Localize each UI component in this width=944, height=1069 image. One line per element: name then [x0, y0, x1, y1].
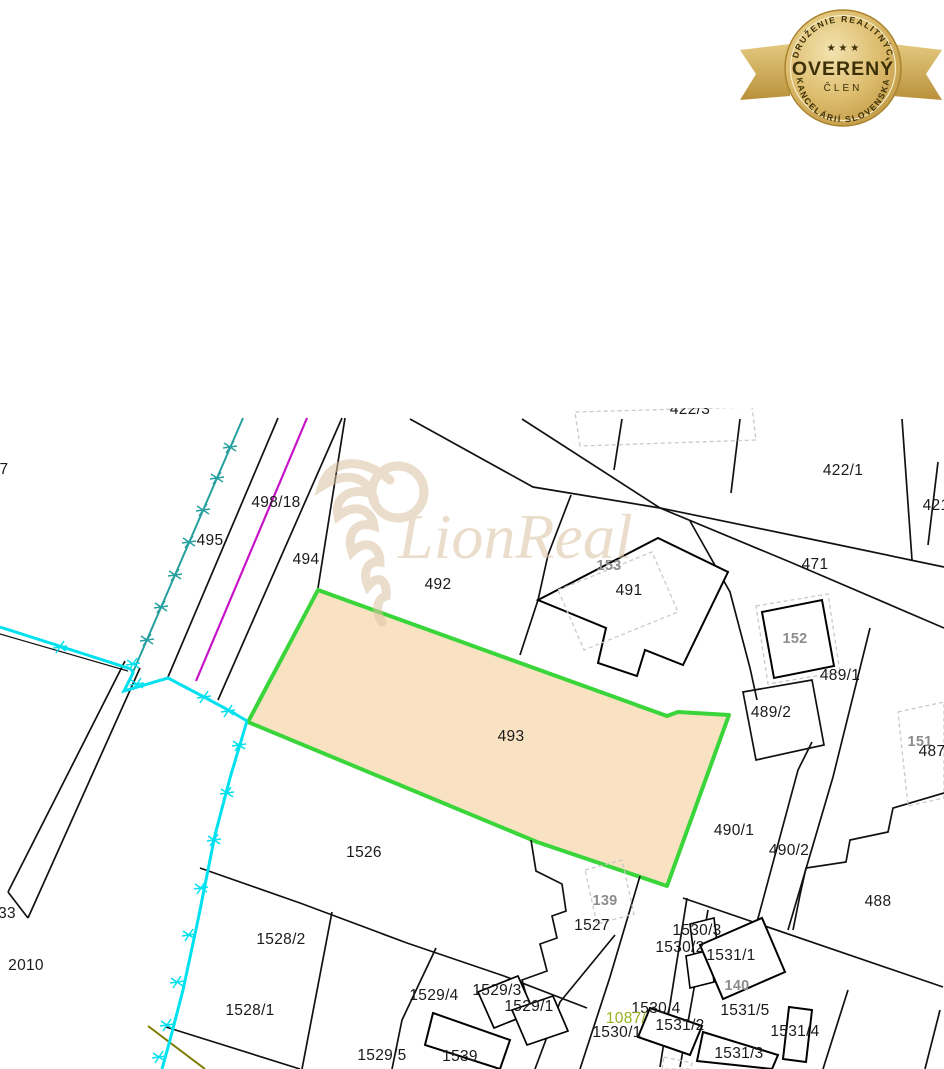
parcel-label-2010: 2010 [8, 957, 44, 975]
parcel-label-494: 494 [293, 551, 320, 569]
parcel-label-1528-1: 1528/1 [225, 1002, 274, 1020]
parcel-label-152: 152 [782, 631, 807, 647]
parcel-label-489-1: 489/1 [820, 667, 860, 685]
cadastral-map-screenshot: LionReal 7495498/18494492422/3422/142147… [0, 0, 944, 1069]
badge-sub-text: ČLEN [824, 81, 863, 94]
badge-stars: ★ ★ ★ [827, 43, 859, 54]
parcel-label-1529-1: 1529/1 [504, 998, 553, 1016]
parcel-label-139: 139 [592, 893, 617, 909]
parcel-label-487: 487 [919, 743, 944, 761]
parcel-label-1531-5: 1531/5 [720, 1002, 769, 1020]
parcel-label-1531-2: 1531/2 [655, 1017, 704, 1035]
parcel-label-492: 492 [425, 576, 452, 594]
parcel-label-1530-2: 1530/2 [655, 939, 704, 957]
parcel-label-153: 153 [596, 558, 621, 574]
parcel-label-1527: 1527 [574, 917, 610, 935]
parcel-label-495: 495 [197, 532, 224, 550]
parcel-label-488: 488 [865, 893, 892, 911]
cadastral-map[interactable]: LionReal 7495498/18494492422/3422/142147… [0, 408, 944, 1069]
parcel-label-7: 7 [0, 461, 8, 479]
parcel-label-421: 421 [923, 497, 944, 515]
parcel-label-422-3: 422/3 [670, 408, 710, 419]
parcel-label-140: 140 [724, 978, 749, 994]
parcel-label-471: 471 [802, 556, 829, 574]
parcel-label-1539: 1539 [442, 1048, 478, 1066]
parcel-label-491: 491 [616, 582, 643, 600]
parcel-label-498-18: 498/18 [251, 494, 300, 512]
parcel-label-1530-1: 1530/1 [592, 1024, 641, 1042]
parcel-label-490-1: 490/1 [714, 822, 754, 840]
parcel-label-493: 493 [498, 728, 525, 746]
parcel-label-1529-4: 1529/4 [409, 987, 458, 1005]
parcel-label-489-2: 489/2 [751, 704, 791, 722]
parcel-label-1531-1: 1531/1 [706, 947, 755, 965]
parcel-label-1531-3: 1531/3 [714, 1045, 763, 1063]
parcel-label-1526: 1526 [346, 844, 382, 862]
parcel-label-490-2: 490/2 [769, 842, 809, 860]
parcel-label-422-1: 422/1 [823, 462, 863, 480]
parcel-label-1528-2: 1528/2 [256, 931, 305, 949]
parcel-label-1531-4: 1531/4 [770, 1023, 819, 1041]
parcel-labels-layer: 7495498/18494492422/3422/142147115349115… [0, 408, 944, 1069]
parcel-label-33: 33 [0, 905, 16, 923]
overeny-member-badge: ZDRUŽENIE REALITNÝCH ★ ★ ★ OVERENÝ ČLEN … [738, 4, 944, 130]
badge-center-text: OVERENÝ [792, 56, 894, 80]
parcel-label-1530-3: 1530/3 [672, 922, 721, 940]
parcel-label-1529-5: 1529/5 [357, 1047, 406, 1065]
